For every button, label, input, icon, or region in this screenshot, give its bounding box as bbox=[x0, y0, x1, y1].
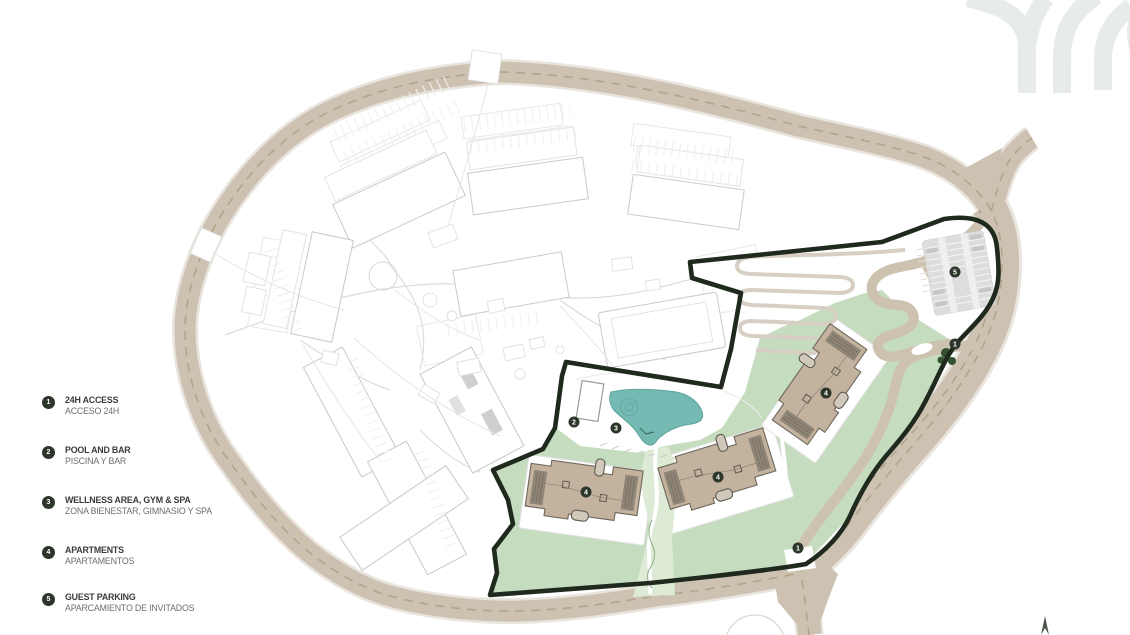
svg-text:1: 1 bbox=[953, 342, 957, 349]
svg-text:4: 4 bbox=[824, 391, 828, 398]
svg-text:4: 4 bbox=[584, 490, 588, 497]
svg-text:3: 3 bbox=[614, 426, 618, 433]
svg-text:4: 4 bbox=[716, 475, 720, 482]
svg-text:1: 1 bbox=[796, 546, 800, 553]
svg-text:5: 5 bbox=[953, 270, 957, 277]
svg-text:2: 2 bbox=[572, 420, 576, 427]
